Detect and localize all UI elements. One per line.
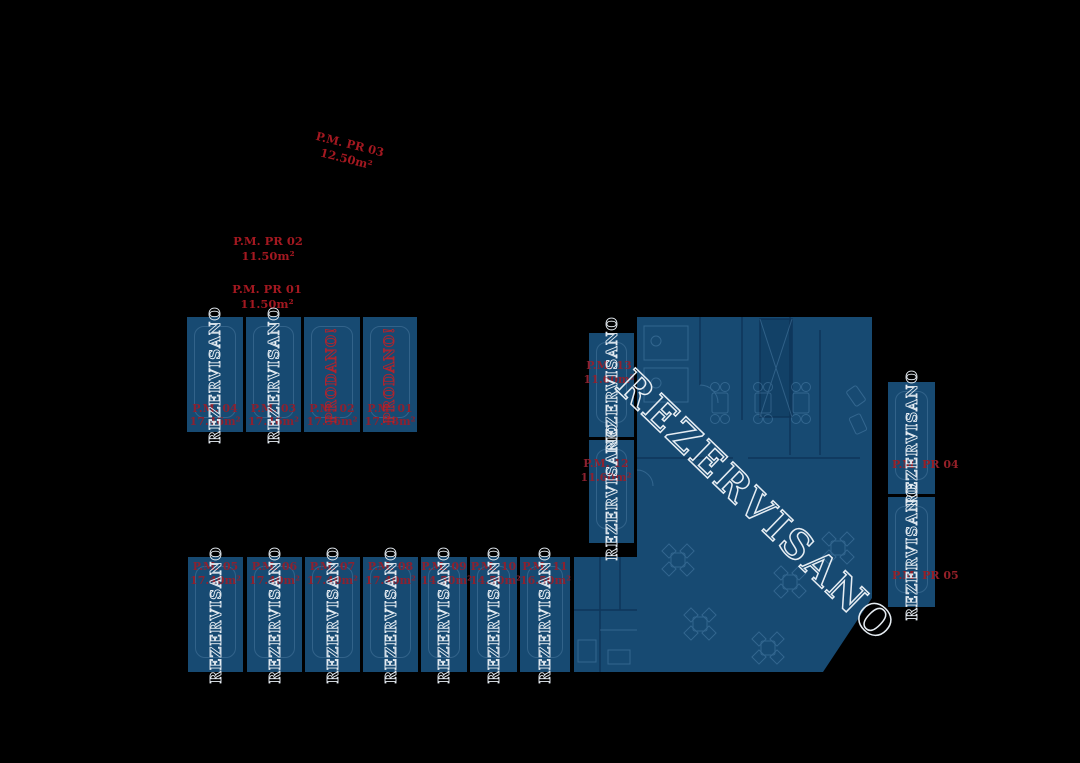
free-spot-name: P.M. PR 01 <box>216 282 318 297</box>
parking-stall-pm11[interactable]: P.M. 11 16.50m² REZERVISANO <box>520 557 570 672</box>
stall-status: PRODANO! <box>382 326 398 423</box>
stall-status: REZERVISANO <box>435 546 453 683</box>
stall-area: 17.46m² <box>187 415 243 429</box>
free-spot-area: 11.50m² <box>217 249 319 264</box>
stall-label: P.M. 03 17.46m² <box>246 402 301 430</box>
stall-status: REZERVISANO <box>903 369 921 506</box>
stall-name: P.M. 06 <box>247 560 302 574</box>
stall-name: P.M. 07 <box>305 560 360 574</box>
parking-stall-pm08[interactable]: P.M. 08 17.40m² REZERVISANO <box>363 557 418 672</box>
stall-status: REZERVISANO <box>382 546 400 683</box>
parking-stall-pm09[interactable]: P.M. 09 14.50m² REZERVISANO <box>421 557 467 672</box>
parking-stall-pm07[interactable]: P.M. 07 17.40m² REZERVISANO <box>305 557 360 672</box>
stall-label: P.M. 11 16.50m² <box>520 560 570 588</box>
parking-stall-pm06[interactable]: P.M. 06 17.40m² REZERVISANO <box>247 557 302 672</box>
stall-area: 17.40m² <box>188 574 243 588</box>
stall-status: REZERVISANO <box>324 546 342 683</box>
stall-area: 17.40m² <box>247 574 302 588</box>
stall-area: 17.46m² <box>246 415 301 429</box>
stall-status: REZERVISANO <box>603 316 621 453</box>
stall-area: 17.36m² <box>304 415 360 429</box>
stall-area: 17.40m² <box>305 574 360 588</box>
stall-name: P.M. 10 <box>470 560 517 574</box>
stall-status: PRODANO! <box>324 326 340 423</box>
parking-stall-pm13[interactable]: P.M. 13 11.60m² REZERVISANO <box>589 333 634 437</box>
stall-area: 14.50m² <box>421 574 467 588</box>
free-spot-area: 11.50m² <box>216 297 318 312</box>
stall-label: P.M. 07 17.40m² <box>305 560 360 588</box>
stall-label: P.M. 10 14.50m² <box>470 560 517 588</box>
stall-name: P.M. 02 <box>304 402 360 416</box>
stall-label: P.M. 01 17.48m² <box>363 402 417 430</box>
stall-area: 17.40m² <box>363 574 418 588</box>
stall-status: REZERVISANO <box>207 546 225 683</box>
stall-label: P.M. 02 17.36m² <box>304 402 360 430</box>
free-spot-pr02[interactable]: P.M. PR 02 11.50m² <box>217 234 319 264</box>
parking-stall-pm12[interactable]: P.M. 12 11.60m² REZERVISANO <box>589 440 634 543</box>
free-spot-pr01[interactable]: P.M. PR 01 11.50m² <box>216 282 318 312</box>
free-spot-name: P.M. PR 02 <box>217 234 319 249</box>
stall-label: P.M. 06 17.40m² <box>247 560 302 588</box>
stall-area: 14.50m² <box>470 574 517 588</box>
stall-name: P.M. 11 <box>520 560 570 574</box>
garage-plan-canvas: REZERVISANO P.M. PR 03 12.50m² P.M. PR 0… <box>0 0 1080 763</box>
stall-name: P.M. 01 <box>363 402 417 416</box>
stall-name: P.M. 05 <box>188 560 243 574</box>
stall-label: P.M. 05 17.40m² <box>188 560 243 588</box>
parking-stall-pm02[interactable]: P.M. 02 17.36m² PRODANO! <box>304 317 360 432</box>
stall-area: 17.48m² <box>363 415 417 429</box>
parking-stall-pr04[interactable]: P.M. PR 04 REZERVISANO <box>888 382 935 494</box>
stall-name: P.M. 03 <box>246 402 301 416</box>
stall-status: REZERVISANO <box>903 483 921 620</box>
parking-stall-pr05[interactable]: P.M. PR 05 REZERVISANO <box>888 497 935 607</box>
parking-stall-pm01[interactable]: P.M. 01 17.48m² PRODANO! <box>363 317 417 432</box>
stall-status: REZERVISANO <box>603 423 621 560</box>
stall-status: REZERVISANO <box>206 306 224 443</box>
stall-label: P.M. 09 14.50m² <box>421 560 467 588</box>
stall-area: 16.50m² <box>520 574 570 588</box>
parking-stall-pm03[interactable]: P.M. 03 17.46m² REZERVISANO <box>246 317 301 432</box>
stall-status: REZERVISANO <box>536 546 554 683</box>
stall-name: P.M. 04 <box>187 402 243 416</box>
stall-status: REZERVISANO <box>485 546 503 683</box>
stall-name: P.M. 09 <box>421 560 467 574</box>
parking-stall-pm05[interactable]: P.M. 05 17.40m² REZERVISANO <box>188 557 243 672</box>
stall-name: P.M. 08 <box>363 560 418 574</box>
stall-label: P.M. 04 17.46m² <box>187 402 243 430</box>
parking-stall-pm10[interactable]: P.M. 10 14.50m² REZERVISANO <box>470 557 517 672</box>
stall-label: P.M. 08 17.40m² <box>363 560 418 588</box>
stall-status: REZERVISANO <box>266 546 284 683</box>
stall-status: REZERVISANO <box>265 306 283 443</box>
parking-stall-pm04[interactable]: P.M. 04 17.46m² REZERVISANO <box>187 317 243 432</box>
